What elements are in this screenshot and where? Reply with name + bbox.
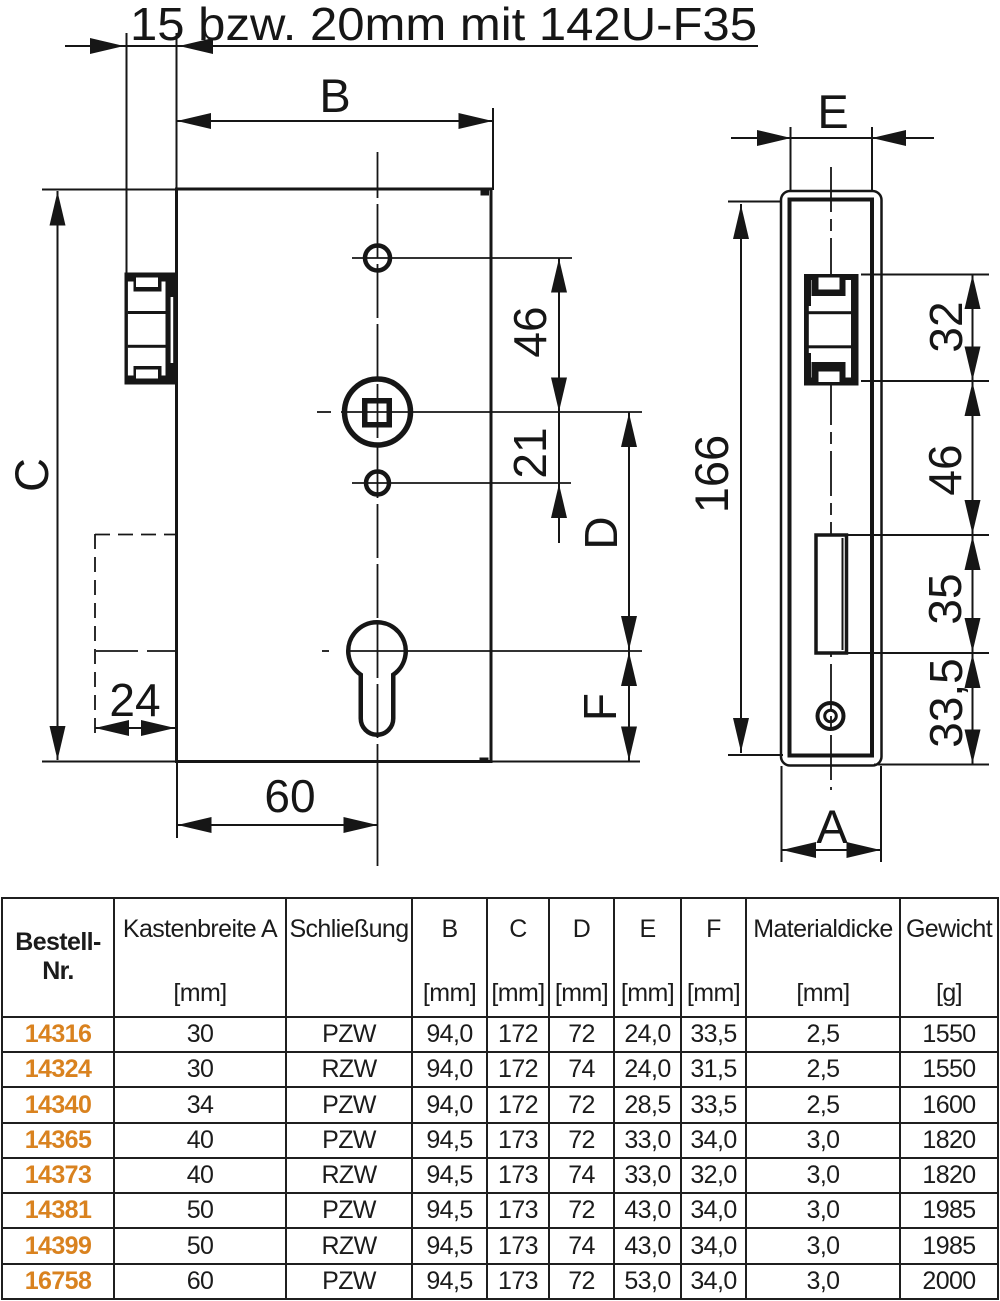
svg-text:A: A [816, 800, 848, 853]
svg-text:24: 24 [109, 674, 160, 726]
svg-text:46: 46 [504, 306, 556, 357]
svg-text:35: 35 [919, 573, 971, 624]
svg-text:D: D [575, 516, 627, 549]
svg-text:32: 32 [920, 301, 972, 352]
svg-text:F: F [574, 693, 626, 721]
svg-text:21: 21 [504, 427, 556, 478]
svg-text:B: B [319, 69, 350, 122]
svg-text:15 bzw. 20mm mit 142U-F35: 15 bzw. 20mm mit 142U-F35 [130, 0, 757, 50]
svg-text:46: 46 [919, 444, 971, 495]
svg-text:E: E [817, 85, 848, 138]
svg-text:166: 166 [685, 435, 738, 513]
svg-text:33,5: 33,5 [920, 658, 972, 748]
svg-text:60: 60 [264, 770, 315, 822]
svg-text:C: C [5, 458, 58, 492]
